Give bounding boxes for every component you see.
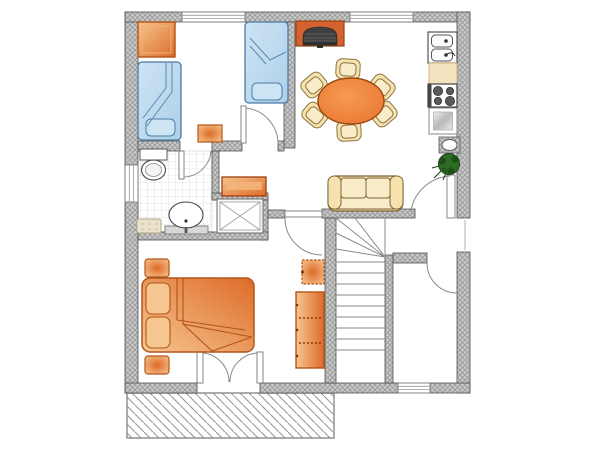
hall-dresser xyxy=(222,177,266,196)
terrace xyxy=(127,393,334,438)
chair xyxy=(335,58,360,79)
wall-outer-right-upper xyxy=(457,12,470,218)
wall-outer-right-lower xyxy=(457,252,470,393)
single-bed-left xyxy=(138,62,181,140)
shower-stall xyxy=(217,199,263,233)
double-sink xyxy=(428,32,457,63)
floor-plan-drawing xyxy=(0,0,600,450)
wall-outer-bottom-left xyxy=(125,383,197,393)
nightstand xyxy=(145,259,169,277)
stool-by-stairs xyxy=(301,260,324,284)
wall-bedroom2-door-stub xyxy=(268,210,285,218)
wall-stair-left xyxy=(325,218,336,383)
stove-4-burner xyxy=(428,84,457,107)
double-bed xyxy=(142,278,254,352)
wall-outer-bottom-mid xyxy=(260,383,398,393)
laundry-basket xyxy=(137,219,161,233)
round-dining-table xyxy=(318,78,384,124)
shelf-unit xyxy=(296,292,324,368)
toilet xyxy=(140,149,167,180)
refrigerator xyxy=(429,108,457,134)
wall-stair-right xyxy=(385,255,393,383)
window-bathroom xyxy=(125,165,138,202)
wall-outer-bottom-right xyxy=(430,383,470,393)
window-kitchen xyxy=(350,12,413,22)
floor-plan-canvas xyxy=(0,0,600,450)
kitchen-counter xyxy=(429,63,457,84)
window-bedroom-upper xyxy=(182,12,245,22)
wardrobe xyxy=(138,22,175,57)
fireplace xyxy=(296,21,344,48)
sofa xyxy=(328,176,403,211)
wall-entry-top xyxy=(393,253,427,263)
wall-outer-left xyxy=(125,12,138,393)
nightstand xyxy=(145,356,169,374)
stool xyxy=(198,125,222,142)
single-bed-right xyxy=(245,22,288,103)
wall-bedroom-bath-c xyxy=(278,141,284,151)
boiler xyxy=(439,137,460,153)
window-entry xyxy=(398,383,430,393)
